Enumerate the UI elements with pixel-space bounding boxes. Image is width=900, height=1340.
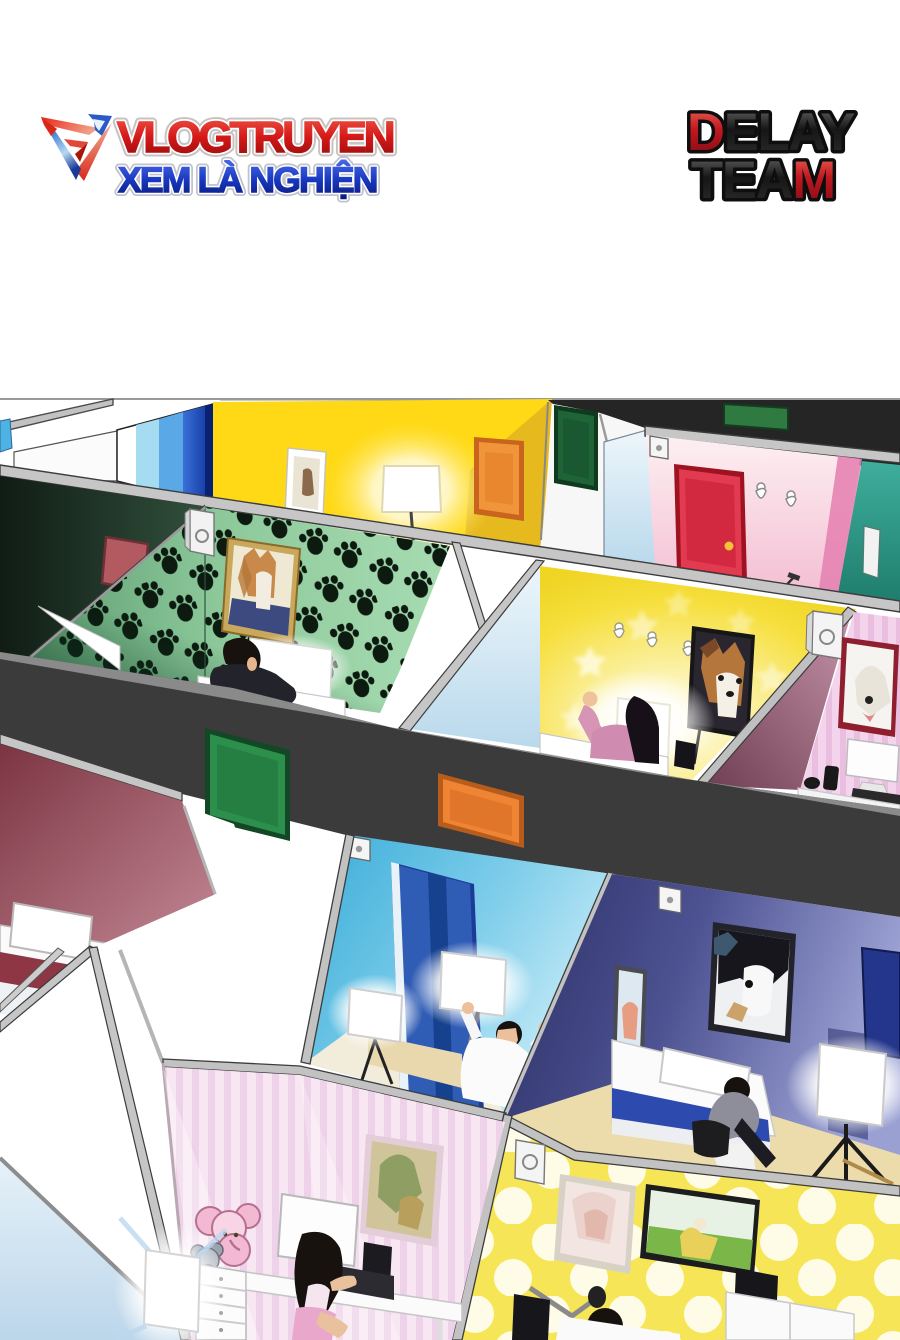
svg-text:VLOGTRUYEN: VLOGTRUYEN [117,113,393,162]
svg-text:XEM LÀ NGHIỆN: XEM LÀ NGHIỆN [118,160,377,200]
